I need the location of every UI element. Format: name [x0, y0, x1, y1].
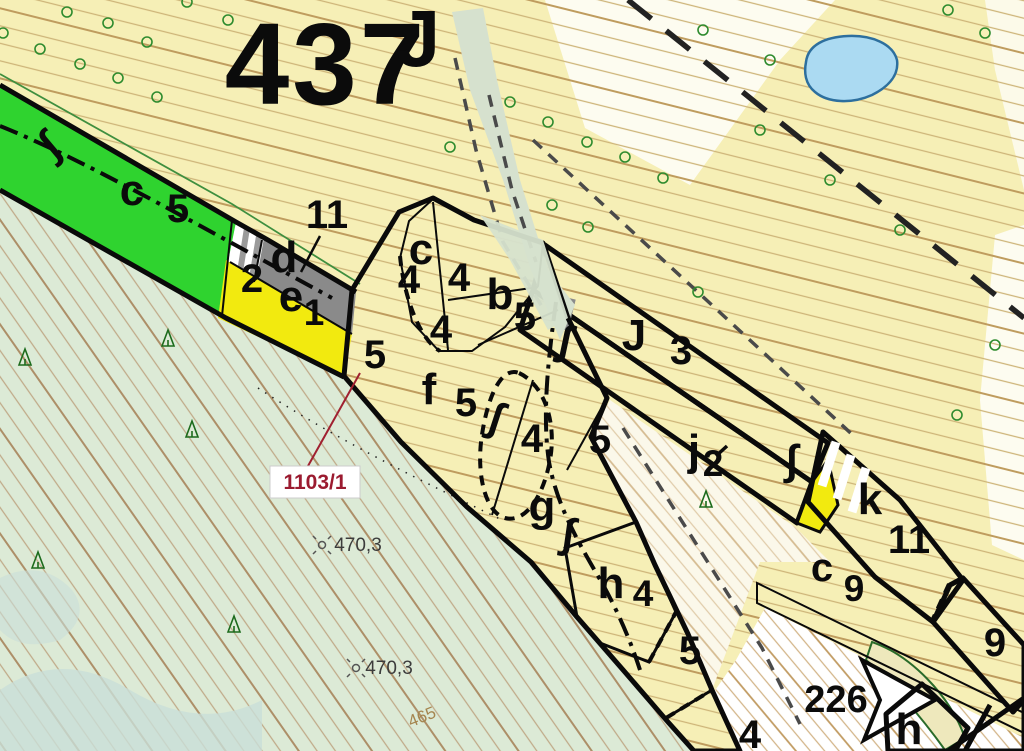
label-k11-num: 11	[888, 518, 930, 562]
label-k11-letter: k	[858, 475, 883, 524]
label-c9-num: 9	[844, 568, 865, 609]
map-canvas[interactable]: ∫ ∫ ∫ ∫ ∫ 437 J c 5 11 d 2 e 1 c 4 4 4 b…	[0, 0, 1024, 751]
label-c4-bottom: 4	[430, 308, 453, 352]
label-e1-num: 1	[304, 292, 325, 333]
label-c5-letter: c	[120, 166, 144, 215]
label-cadastral-1103: 1103/1	[283, 471, 346, 494]
label-stand-suffix: J	[396, 0, 441, 83]
label-f5-letter: f	[422, 365, 437, 414]
label-g-letter: g	[529, 482, 556, 531]
label-c5-num: 5	[167, 187, 189, 231]
label-h-se: h	[896, 705, 923, 751]
label-f5-left: 5	[364, 333, 386, 377]
label-b5-letter: b	[487, 270, 514, 319]
label-g-5: 5	[589, 418, 611, 462]
label-c4-left: 4	[398, 258, 421, 302]
label-s5: 5	[679, 629, 701, 673]
label-h4-num: 4	[633, 573, 654, 614]
label-e1-prefix: 2	[241, 257, 263, 301]
label-226: 226	[804, 679, 867, 721]
label-c9-letter: c	[811, 546, 833, 590]
label-spot-height-1: 470,3	[334, 535, 382, 556]
label-e1-letter: e	[279, 272, 303, 321]
label-brown-9: 9	[984, 621, 1006, 665]
label-s4: 4	[739, 713, 762, 751]
label-J3-letter: J	[622, 311, 646, 360]
label-blob-4: 4	[521, 417, 544, 461]
label-j2-letter: j	[687, 426, 700, 475]
label-f5-num: 5	[455, 381, 477, 425]
label-h4-letter: h	[598, 559, 625, 608]
label-j2-num: 2	[703, 443, 724, 484]
forestry-stand-map: ∫ ∫ ∫ ∫ ∫ 437 J c 5 11 d 2 e 1 c 4 4 4 b…	[0, 0, 1024, 751]
label-spot-height-2: 470,3	[365, 658, 413, 679]
label-ref-11: 11	[306, 193, 348, 237]
label-c4-right: 4	[448, 256, 471, 300]
label-J3-num: 3	[670, 329, 692, 373]
label-b5-num: 5	[514, 295, 536, 339]
